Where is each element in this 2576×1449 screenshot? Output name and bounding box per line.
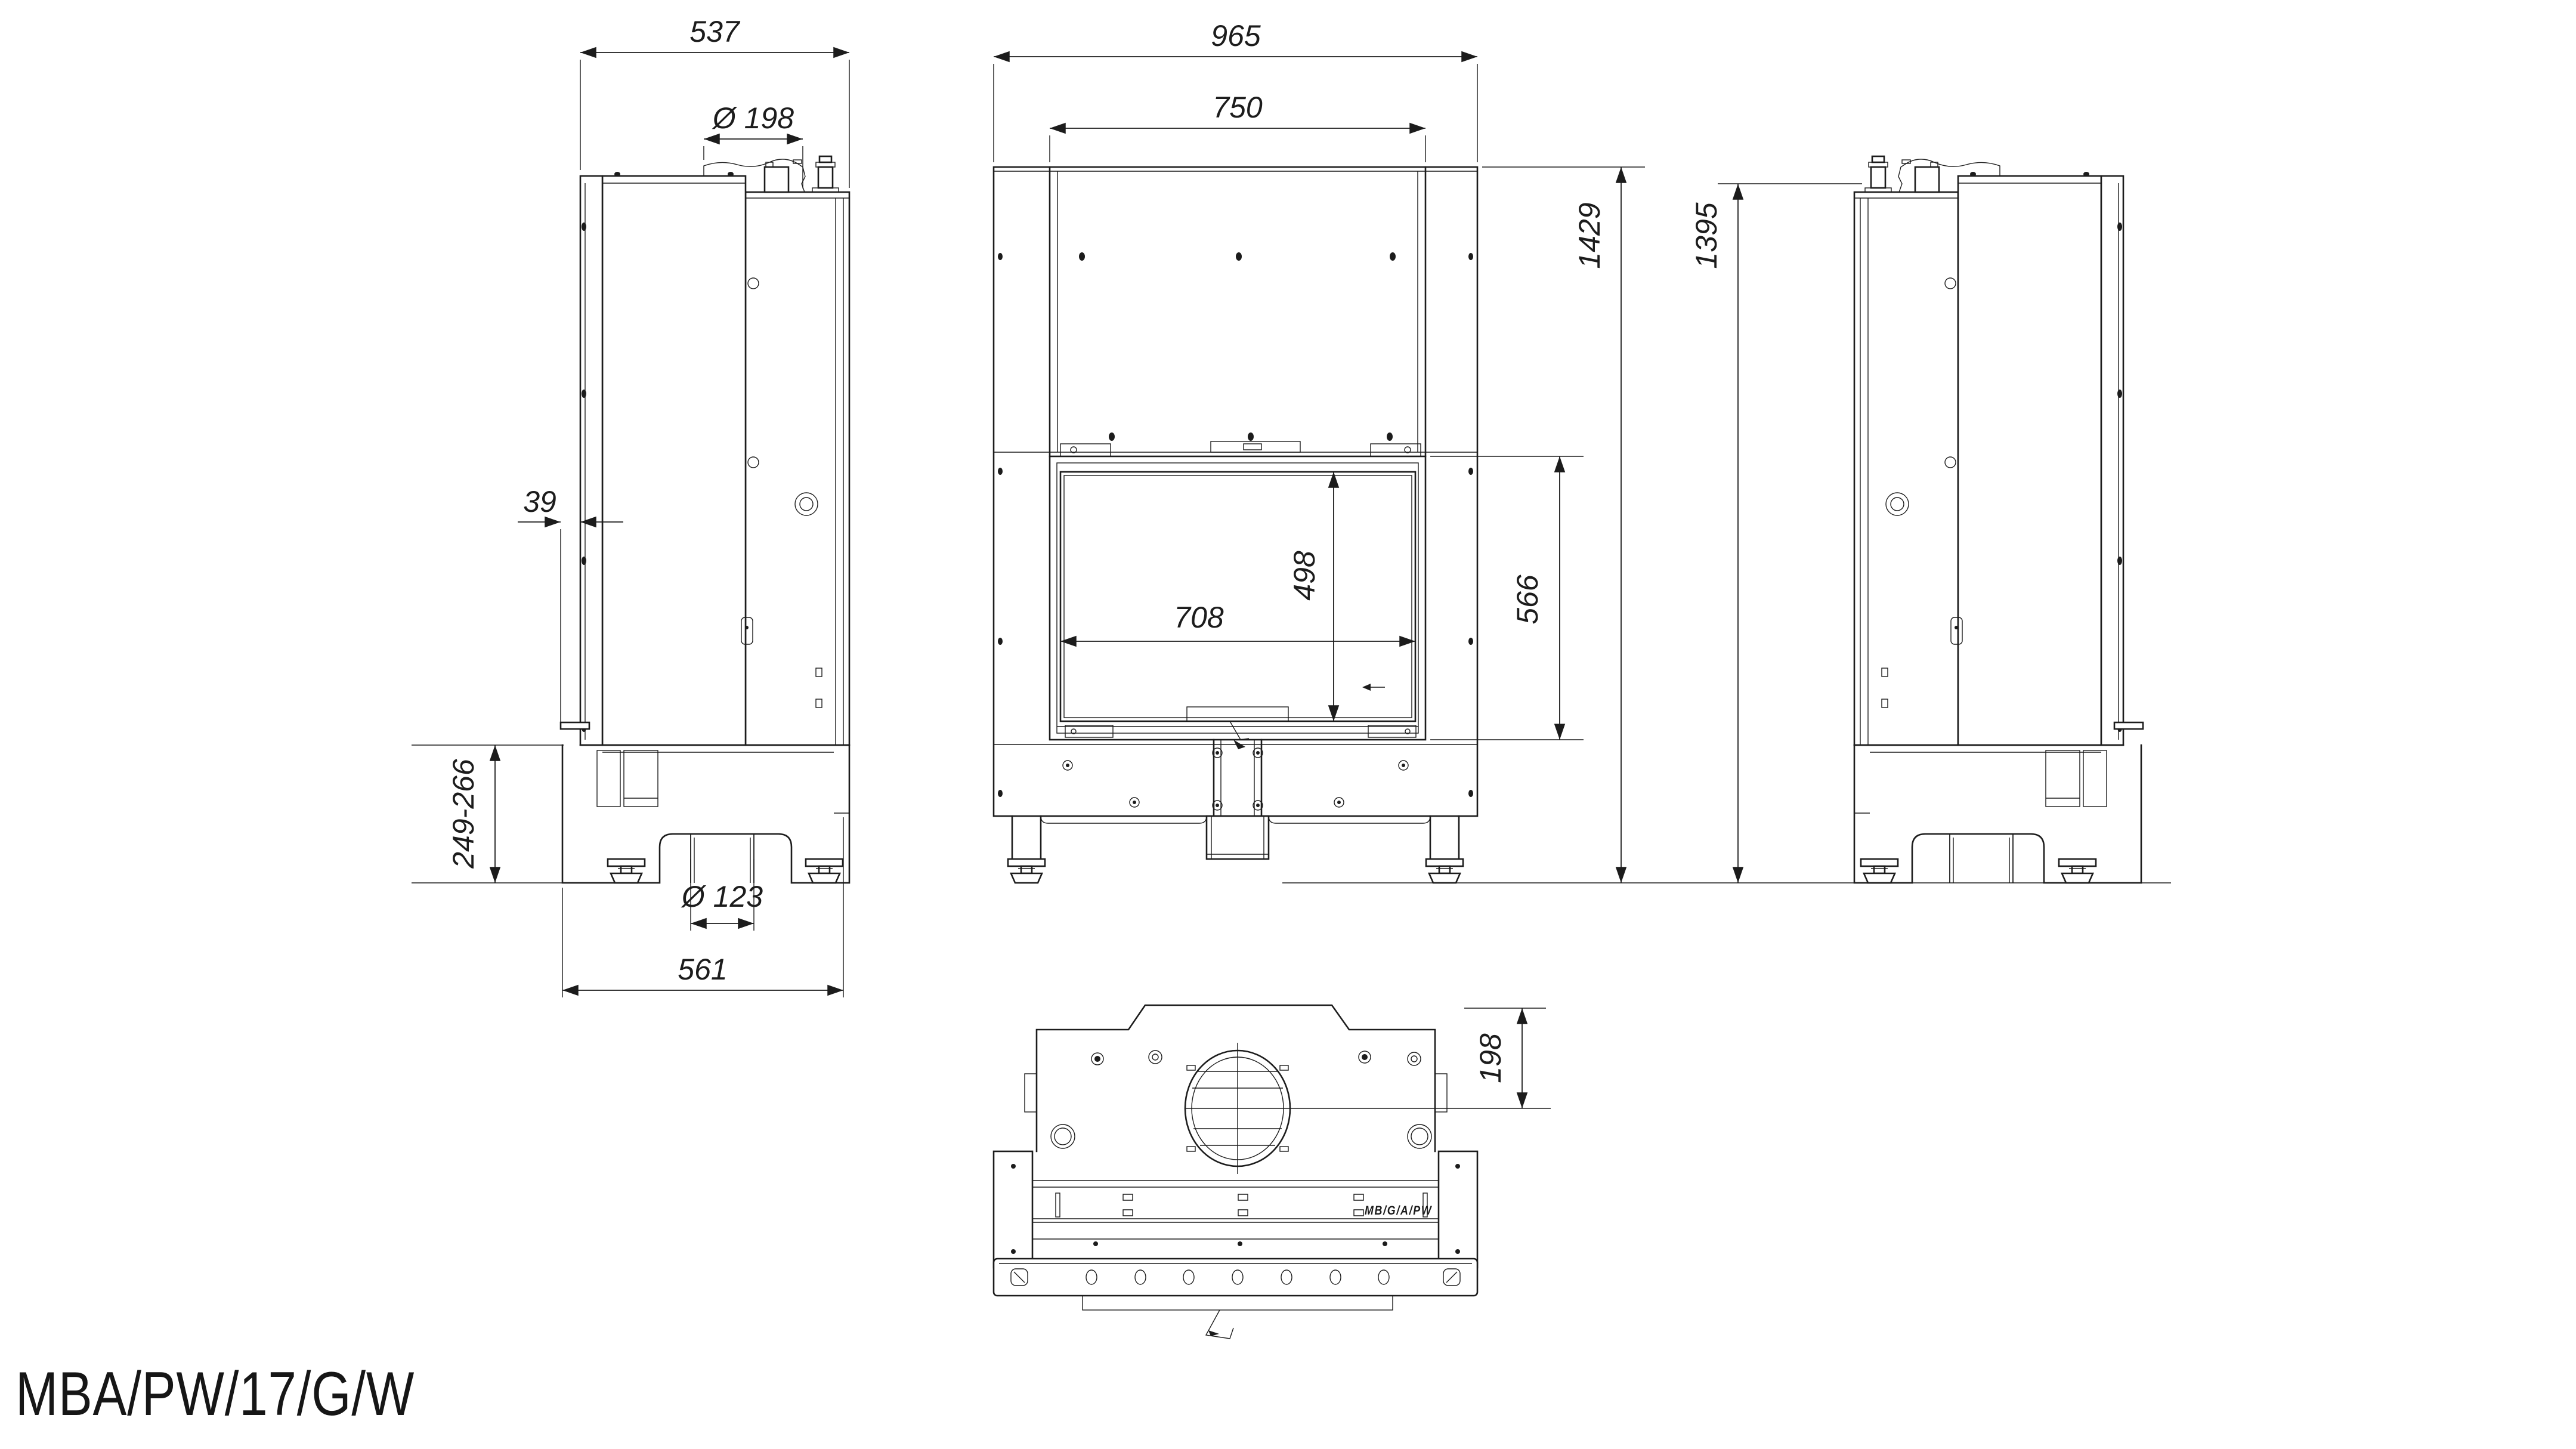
- technical-drawing-canvas: 537 Ø 198 39 249-266 Ø 123 561: [0, 0, 2576, 1449]
- edge-bolt: [1468, 468, 1473, 475]
- dim-750: 750: [1213, 91, 1263, 124]
- edge-bolt: [1468, 253, 1473, 260]
- bolt-hole-center: [1094, 1056, 1100, 1062]
- face-bolt: [582, 390, 586, 398]
- panel-screw: [1248, 432, 1254, 441]
- edge-bolt: [998, 468, 1003, 475]
- top-bolt: [614, 172, 620, 177]
- dim-198-top: 198: [1474, 1033, 1507, 1083]
- dim-561: 561: [678, 953, 727, 986]
- edge-bolt: [1468, 638, 1473, 645]
- dim-flue-diameter: Ø 198: [712, 101, 794, 135]
- edge-bolt: [1468, 790, 1473, 797]
- face-bolt: [582, 223, 586, 231]
- air-duct: [1207, 816, 1269, 859]
- fitting-box: [1915, 167, 1939, 192]
- door-glass-strip: [2101, 176, 2123, 745]
- valve-cap: [1872, 156, 1884, 162]
- dim-1395: 1395: [1690, 202, 1723, 268]
- top-bolt: [1970, 172, 1976, 177]
- top-bolt: [728, 172, 734, 177]
- dim-498: 498: [1288, 551, 1321, 601]
- part-marking-text: MB/G/A/PW: [1365, 1204, 1432, 1218]
- panel-screw: [1387, 432, 1393, 441]
- panel-bolt: [1011, 1164, 1016, 1169]
- front-bar: [994, 1259, 1477, 1296]
- panel-bolt: [1455, 1249, 1460, 1254]
- paper-background: [0, 0, 2576, 1449]
- door-glass-strip: [580, 176, 602, 745]
- panel-screw: [1236, 252, 1242, 261]
- fitting-box: [765, 167, 788, 192]
- valve-cap: [820, 156, 831, 162]
- front-housing: [1958, 176, 2101, 745]
- valve-body: [818, 167, 833, 188]
- edge-bolt: [998, 253, 1003, 260]
- top-bolt: [2083, 172, 2089, 177]
- dim-1429: 1429: [1573, 202, 1606, 268]
- rear-body-block: [1854, 192, 1958, 745]
- dim-708: 708: [1174, 601, 1224, 634]
- base-screw: [1383, 1241, 1387, 1246]
- air-control-lever: [561, 722, 589, 729]
- drawing-page: 537 Ø 198 39 249-266 Ø 123 561: [0, 0, 2576, 1449]
- face-bolt: [2117, 557, 2122, 565]
- panel-bolt: [1455, 1164, 1460, 1169]
- panel-bolt: [1011, 1249, 1016, 1254]
- face-bolt: [582, 557, 586, 565]
- dim-566: 566: [1511, 574, 1544, 625]
- air-control-lever: [2114, 722, 2143, 729]
- valve-body: [1871, 167, 1885, 188]
- front-housing: [602, 176, 746, 745]
- latch-hole: [745, 626, 749, 629]
- dim-plinth-height: 249-266: [447, 759, 480, 869]
- face-bolt: [2117, 390, 2122, 398]
- bolt-hole-center: [1362, 1054, 1368, 1060]
- dim-537: 537: [689, 15, 741, 48]
- base-screw: [1093, 1241, 1098, 1246]
- latch-hole: [1955, 626, 1958, 629]
- panel-screw: [1109, 432, 1115, 441]
- face-bolt: [2117, 223, 2122, 231]
- base-screw: [1238, 1241, 1242, 1246]
- dim-39: 39: [523, 485, 556, 518]
- dim-965: 965: [1211, 19, 1261, 52]
- panel-screw: [1390, 252, 1396, 261]
- edge-bolt: [998, 638, 1003, 645]
- rear-body-block: [746, 192, 849, 745]
- dim-inlet-diameter: Ø 123: [681, 880, 763, 913]
- model-label: MBA/PW/17/G/W: [16, 1360, 415, 1429]
- panel-screw: [1079, 252, 1085, 261]
- edge-bolt: [998, 790, 1003, 797]
